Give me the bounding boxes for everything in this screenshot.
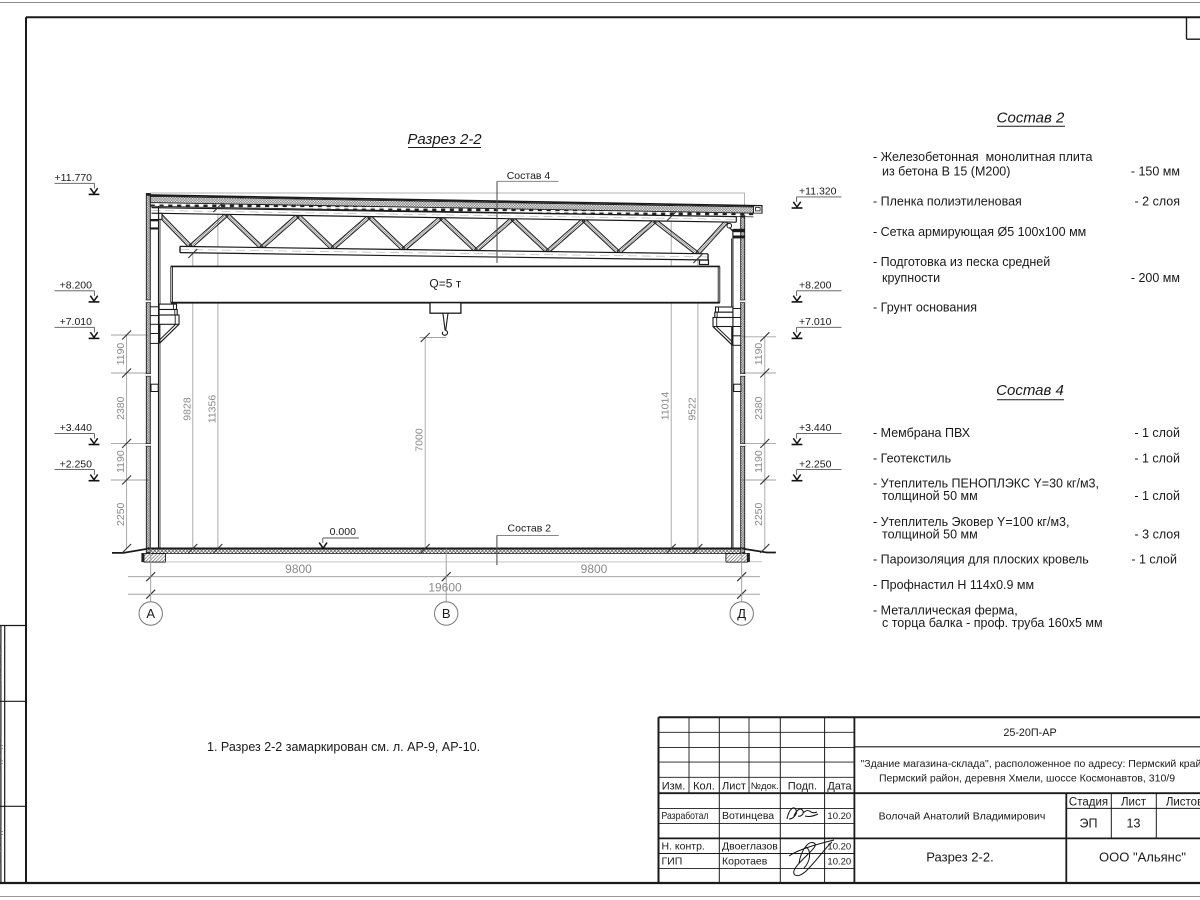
svg-text:- 1 слой: - 1 слой — [1134, 452, 1180, 466]
svg-text:Подп.: Подп. — [788, 781, 817, 793]
svg-text:+3.440: +3.440 — [799, 422, 832, 434]
svg-text:Состав 2: Состав 2 — [508, 523, 552, 535]
svg-text:Лист: Лист — [722, 781, 746, 793]
svg-text:- Пленка полиэтиленовая: - Пленка полиэтиленовая — [873, 195, 1022, 209]
svg-text:- Подготовка из песка средней: - Подготовка из песка средней — [873, 255, 1050, 269]
svg-text:1190: 1190 — [115, 343, 127, 366]
svg-text:"Здание магазина-склада", расп: "Здание магазина-склада", расположенное … — [861, 758, 1200, 770]
svg-text:2250: 2250 — [115, 502, 127, 526]
svg-text:Листов: Листов — [1166, 797, 1200, 809]
svg-text:1. Разрез 2-2 замаркирован см.: 1. Разрез 2-2 замаркирован см. л. АР-9, … — [207, 740, 480, 754]
svg-text:- 150 мм: - 150 мм — [1131, 165, 1180, 179]
svg-text:13: 13 — [1127, 817, 1141, 831]
svg-text:№док.: №док. — [751, 781, 779, 792]
svg-text:Подп. и дата: Подп. и дата — [0, 735, 3, 771]
svg-text:с торца балка - проф. труба 16: с торца балка - проф. труба 160х5 мм — [882, 616, 1103, 630]
svg-text:ГИП: ГИП — [662, 856, 683, 868]
svg-text:+3.440: +3.440 — [60, 422, 93, 434]
svg-text:Лист: Лист — [1121, 797, 1147, 809]
svg-text:Взам. инв. №: Взам. инв. № — [0, 645, 3, 682]
svg-text:- 2 слоя: - 2 слоя — [1135, 195, 1180, 209]
svg-text:9800: 9800 — [581, 562, 608, 576]
svg-text:10.20: 10.20 — [827, 811, 851, 822]
svg-text:- Мембрана ПВХ: - Мембрана ПВХ — [873, 426, 971, 440]
svg-text:1190: 1190 — [753, 450, 765, 473]
svg-text:2250: 2250 — [753, 502, 765, 526]
svg-text:- 1 слой: - 1 слой — [1134, 426, 1180, 440]
svg-text:из бетона В 15 (М200): из бетона В 15 (М200) — [882, 165, 1010, 179]
svg-text:Разрез 2-2: Разрез 2-2 — [407, 131, 482, 148]
svg-text:9522: 9522 — [686, 397, 698, 421]
svg-text:+7.010: +7.010 — [799, 316, 832, 328]
svg-text:Разработал: Разработал — [662, 810, 709, 822]
svg-text:+2.250: +2.250 — [799, 458, 832, 470]
svg-text:+11.770: +11.770 — [55, 172, 93, 184]
svg-text:+8.200: +8.200 — [60, 280, 93, 292]
svg-text:- Геотекстиль: - Геотекстиль — [873, 452, 951, 466]
svg-text:- Грунт основания: - Грунт основания — [873, 301, 977, 315]
svg-text:Дата: Дата — [827, 781, 852, 793]
svg-text:11356: 11356 — [206, 395, 218, 424]
svg-text:Изм.: Изм. — [662, 781, 686, 793]
svg-text:- Пароизоляция для плоских кро: - Пароизоляция для плоских кровель — [873, 553, 1089, 567]
svg-text:- Сетка армирующая Ø5 100х100: - Сетка армирующая Ø5 100х100 мм — [873, 225, 1086, 239]
svg-text:Пермский район, деревня Хмели,: Пермский район, деревня Хмели, шоссе Кос… — [879, 772, 1175, 784]
svg-text:Разрез 2-2.: Разрез 2-2. — [926, 850, 993, 865]
svg-text:9828: 9828 — [181, 397, 193, 421]
svg-text:1190: 1190 — [115, 450, 127, 473]
svg-text:- Железобетонная монолитная п: - Железобетонная монолитная плита — [873, 150, 1092, 164]
svg-text:11014: 11014 — [660, 392, 672, 421]
svg-text:Двоеглазов: Двоеглазов — [722, 840, 778, 852]
svg-text:- 1 слой: - 1 слой — [1131, 553, 1177, 567]
svg-text:Вотинцева: Вотинцева — [722, 810, 774, 822]
svg-text:9800: 9800 — [285, 562, 312, 576]
svg-text:толщиной 50 мм: толщиной 50 мм — [882, 528, 978, 542]
svg-text:Состав 4: Состав 4 — [507, 170, 551, 182]
svg-text:2380: 2380 — [753, 396, 765, 420]
svg-text:Н. контр.: Н. контр. — [662, 840, 705, 852]
svg-text:Инв. № подл.: Инв. № подл. — [0, 826, 3, 864]
svg-text:Состав 2: Состав 2 — [997, 110, 1065, 127]
svg-text:А: А — [146, 606, 155, 621]
svg-text:19600: 19600 — [428, 581, 462, 595]
svg-text:В: В — [442, 606, 451, 621]
svg-text:Q=5 т: Q=5 т — [429, 277, 461, 291]
svg-text:10.20: 10.20 — [827, 857, 851, 868]
svg-text:25-20П-АР: 25-20П-АР — [1003, 727, 1056, 739]
svg-text:+2.250: +2.250 — [60, 458, 93, 470]
svg-text:- 200 мм: - 200 мм — [1131, 271, 1180, 285]
svg-text:- Профнастил Н 114х0.9 мм: - Профнастил Н 114х0.9 мм — [873, 578, 1034, 592]
svg-text:Стадия: Стадия — [1069, 797, 1108, 809]
svg-text:0.000: 0.000 — [330, 526, 356, 538]
svg-text:ЭП: ЭП — [1080, 817, 1098, 831]
svg-text:+7.010: +7.010 — [60, 316, 93, 328]
svg-text:+8.200: +8.200 — [799, 280, 832, 292]
svg-text:крупности: крупности — [882, 271, 940, 285]
svg-text:ООО "Альянс": ООО "Альянс" — [1099, 850, 1186, 865]
svg-text:Коротаев: Коротаев — [722, 856, 768, 868]
svg-text:7000: 7000 — [414, 428, 426, 452]
svg-text:Волочай Анатолий Владимирович: Волочай Анатолий Владимирович — [879, 811, 1046, 823]
svg-text:+11.320: +11.320 — [799, 186, 837, 198]
svg-text:Д: Д — [737, 606, 746, 621]
svg-text:Состав 4: Состав 4 — [996, 382, 1064, 399]
svg-text:Кол.: Кол. — [693, 781, 715, 793]
svg-text:толщиной 50 мм: толщиной 50 мм — [882, 489, 978, 503]
svg-text:- 1 слой: - 1 слой — [1134, 489, 1180, 503]
svg-text:- 3 слоя: - 3 слоя — [1135, 528, 1180, 542]
svg-text:2380: 2380 — [115, 396, 127, 420]
svg-text:1190: 1190 — [753, 343, 765, 366]
